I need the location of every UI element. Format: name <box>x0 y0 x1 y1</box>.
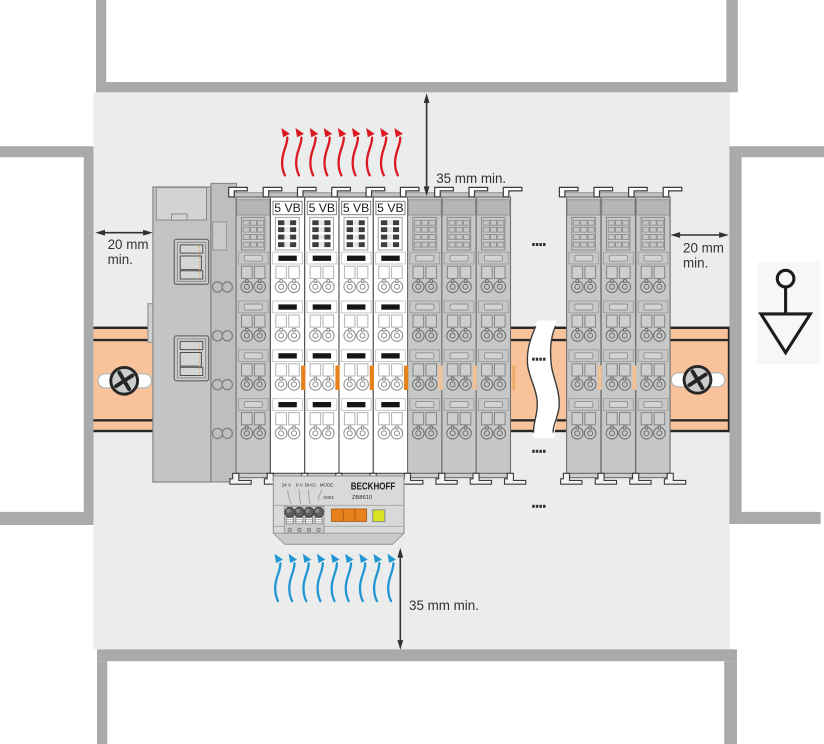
svg-text:24 V: 24 V <box>282 483 292 488</box>
svg-text:5 VB: 5 VB <box>309 201 335 215</box>
svg-text:35 mm min.: 35 mm min. <box>409 598 479 613</box>
svg-text:20 mm: 20 mm <box>108 237 149 252</box>
svg-text:MODE: MODE <box>320 483 334 488</box>
svg-text:35 mm min.: 35 mm min. <box>436 171 506 186</box>
svg-text:5 VB: 5 VB <box>343 201 369 215</box>
svg-text:BECKHOFF: BECKHOFF <box>351 482 396 493</box>
svg-text:5 VB: 5 VB <box>377 201 403 215</box>
svg-text:min.: min. <box>683 255 708 270</box>
svg-text:X001: X001 <box>323 495 334 500</box>
svg-text:5 VB: 5 VB <box>274 201 300 215</box>
svg-text:0 V: 0 V <box>296 483 304 488</box>
svg-text:ZB8610: ZB8610 <box>352 495 372 501</box>
svg-text:DIAG: DIAG <box>305 483 317 488</box>
svg-text:20 mm: 20 mm <box>683 240 724 255</box>
svg-text:min.: min. <box>108 252 133 267</box>
